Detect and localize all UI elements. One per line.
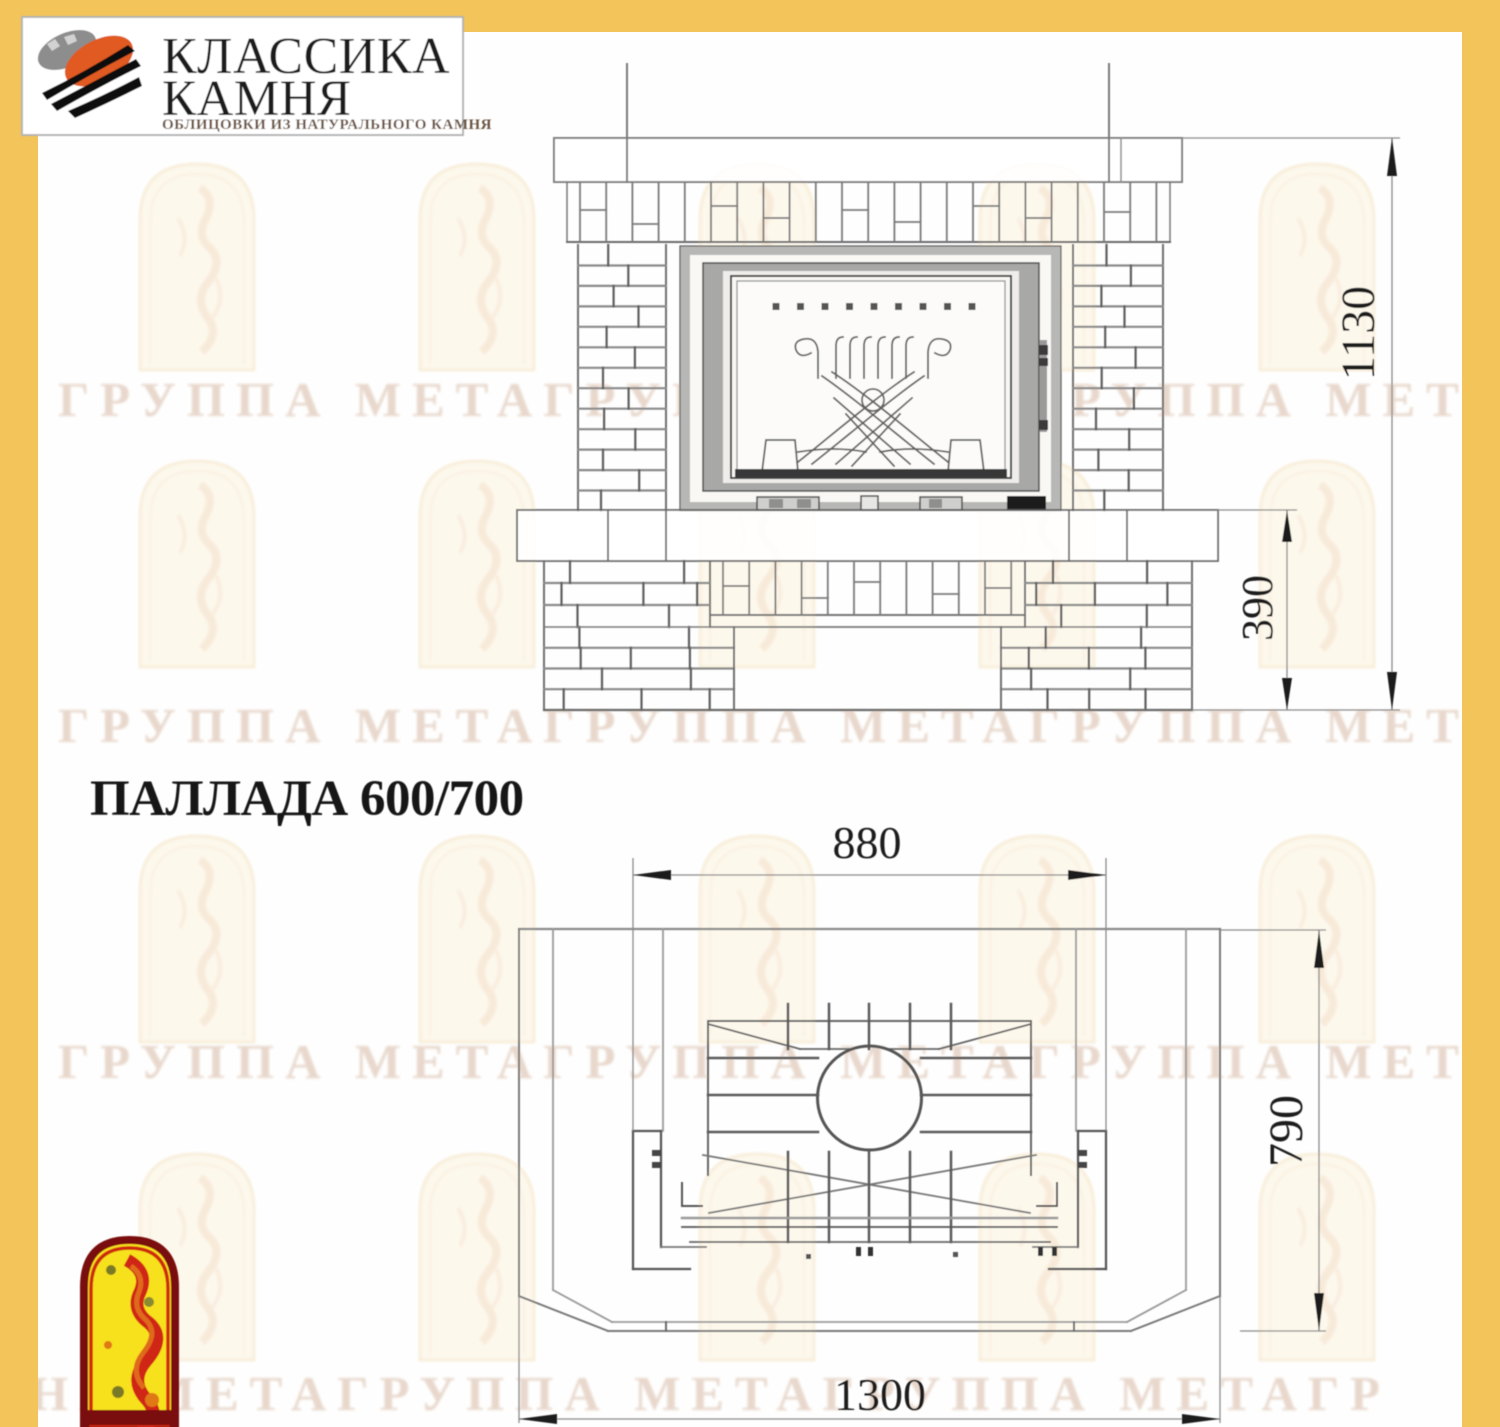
svg-text:790: 790 <box>1260 1095 1313 1167</box>
svg-text:НА МЕТАГРУППА МЕТАГРУППА МЕТАГ: НА МЕТАГРУППА МЕТАГРУППА МЕТАГР <box>30 1366 1391 1421</box>
svg-text:ГРУППА МЕТАГРУППА МЕТАГРУППА М: ГРУППА МЕТАГРУППА МЕТАГРУППА МЕТА <box>58 698 1500 753</box>
svg-text:880: 880 <box>833 817 902 868</box>
svg-text:1130: 1130 <box>1332 286 1385 380</box>
svg-text:ПАЛЛАДА 600/700: ПАЛЛАДА 600/700 <box>90 771 524 827</box>
svg-text:390: 390 <box>1233 575 1282 641</box>
svg-text:ГРУППА МЕТАГРУППА МЕТАГРУППА М: ГРУППА МЕТАГРУППА МЕТАГРУППА МЕТА <box>58 1034 1500 1089</box>
svg-text:1300: 1300 <box>834 1369 926 1420</box>
svg-text:ОБЛИЦОВКИ ИЗ НАТУРАЛЬНОГО КАМН: ОБЛИЦОВКИ ИЗ НАТУРАЛЬНОГО КАМНЯ <box>162 117 492 133</box>
